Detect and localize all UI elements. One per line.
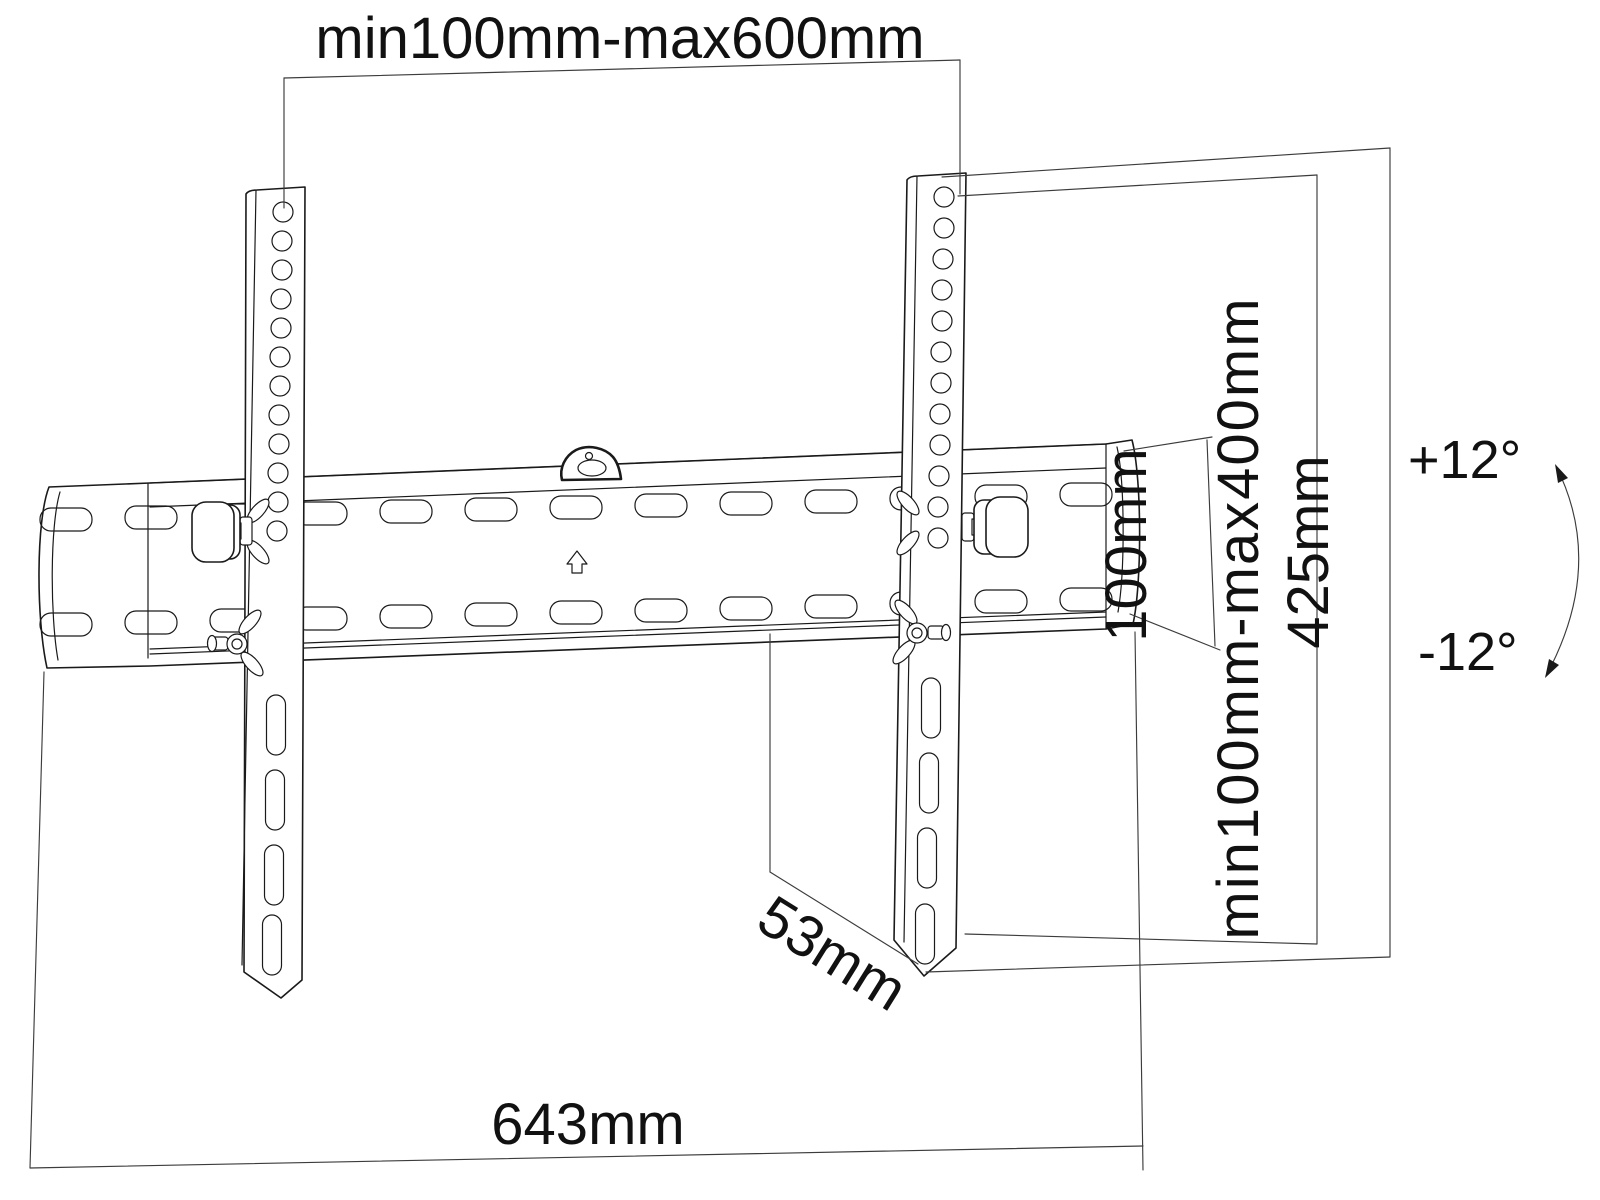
arc-arrowhead-up: [1555, 464, 1568, 483]
tilt-angle-annotation: +12° -12°: [1408, 430, 1579, 682]
dim-wall-distance: 53mm: [747, 634, 918, 1024]
right-bracket-body: [894, 173, 966, 976]
extension-line: [926, 957, 1390, 972]
dim-label-wall-distance: 53mm: [747, 883, 918, 1024]
left-bracket-body: [244, 187, 305, 998]
dim-right-end-height: 100mm: [1094, 437, 1220, 650]
extension-line: [958, 175, 1317, 196]
bubble-level-icon: [561, 447, 621, 480]
dim-top-width-range: min100mm-max600mm: [284, 6, 960, 208]
dim-label-plate-width: 643mm: [491, 1092, 684, 1157]
dim-label-bracket-height: 425mm: [1276, 455, 1341, 648]
hex-nut: [227, 634, 247, 654]
screw-tip-end: [942, 625, 951, 641]
technical-drawing-canvas: min100mm-max600mm 100mm min100mm-max400m…: [0, 0, 1600, 1200]
tilt-up-label: +12°: [1408, 430, 1521, 490]
arc-arrowhead-down: [1545, 659, 1559, 678]
right-vesa-bracket: [894, 173, 966, 976]
tilt-arc: [1546, 466, 1579, 676]
tilt-down-label: -12°: [1418, 622, 1518, 682]
washer: [240, 517, 252, 545]
left-vesa-bracket: [242, 187, 305, 998]
extension-line: [942, 148, 1390, 177]
extension-line: [30, 672, 44, 1168]
knob-face: [192, 502, 234, 562]
dim-label-top-width-range: min100mm-max600mm: [315, 6, 924, 71]
dim-label-vesa-vertical-range: min100mm-max400mm: [1206, 296, 1271, 939]
knob-face: [986, 497, 1028, 557]
dim-label-right-end-height: 100mm: [1094, 448, 1159, 641]
wall-mount-drawing: min100mm-max600mm 100mm min100mm-max400m…: [0, 0, 1600, 1200]
hex-nut: [907, 623, 927, 643]
dim-plate-width: 643mm: [30, 632, 1143, 1170]
extension-line: [1135, 632, 1143, 1170]
screw-tip-end: [208, 636, 217, 652]
